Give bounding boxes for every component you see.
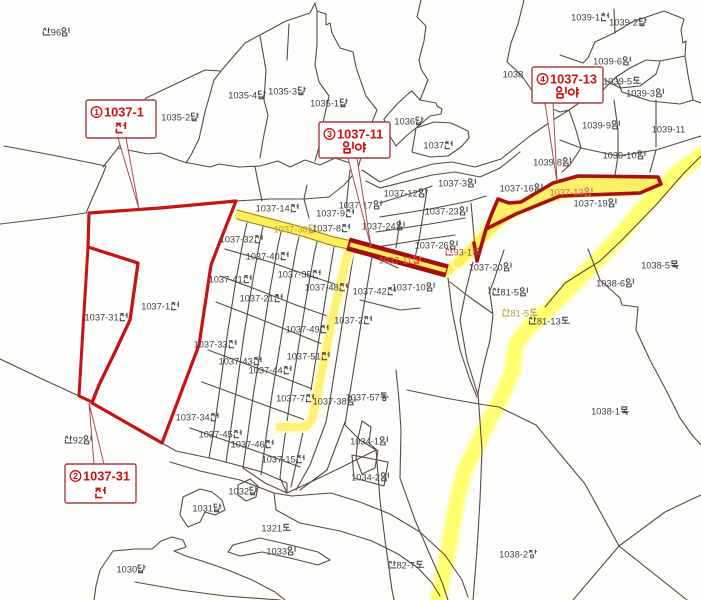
svg-text:1037-1: 1037-1	[104, 105, 144, 120]
svg-text:1037-10: 1037-10	[392, 282, 426, 292]
svg-text:1037-21: 1037-21	[240, 293, 274, 303]
svg-text:1037-17: 1037-17	[339, 200, 373, 210]
svg-text:1037-44: 1037-44	[249, 365, 283, 375]
svg-text:1038: 1038	[503, 69, 524, 79]
svg-text:92: 92	[73, 435, 83, 445]
svg-text:1037-41: 1037-41	[209, 274, 243, 284]
svg-text:1037-19: 1037-19	[574, 198, 608, 208]
svg-text:1037-8: 1037-8	[312, 223, 341, 233]
svg-text:1038-5: 1038-5	[641, 260, 670, 270]
svg-text:1037-45: 1037-45	[199, 429, 233, 439]
svg-text:1037-38: 1037-38	[313, 396, 347, 406]
svg-text:1038-2: 1038-2	[499, 549, 528, 559]
svg-text:1037: 1037	[423, 140, 444, 150]
svg-text:1037-20: 1037-20	[469, 262, 503, 272]
svg-text:1037-42: 1037-42	[353, 286, 387, 296]
svg-text:1037-11: 1037-11	[337, 127, 383, 142]
svg-text:1037-13: 1037-13	[550, 187, 584, 197]
svg-text:1039-6: 1039-6	[593, 56, 622, 66]
svg-text:1037-48: 1037-48	[305, 282, 339, 292]
svg-text:1032: 1032	[228, 486, 249, 496]
svg-text:1039-1: 1039-1	[571, 12, 600, 22]
svg-text:1037-46: 1037-46	[231, 439, 265, 449]
svg-text:1037-30: 1037-30	[274, 224, 308, 234]
svg-text:1038-6: 1038-6	[596, 278, 625, 288]
svg-text:81-13: 81-13	[537, 316, 561, 326]
svg-text:1039-3: 1039-3	[626, 88, 655, 98]
svg-text:82-7: 82-7	[397, 560, 416, 570]
svg-text:81-5: 81-5	[501, 287, 520, 297]
svg-text:1037-35: 1037-35	[278, 269, 312, 279]
svg-text:96: 96	[51, 27, 61, 37]
svg-text:1037-32: 1037-32	[220, 234, 254, 244]
svg-text:3: 3	[327, 129, 332, 139]
svg-text:1039-9: 1039-9	[582, 120, 611, 130]
svg-text:1037-14: 1037-14	[256, 203, 290, 213]
svg-text:1037-31: 1037-31	[83, 469, 130, 484]
svg-text:1031: 1031	[192, 503, 213, 513]
svg-text:1037-34: 1037-34	[176, 412, 210, 422]
svg-text:1039-2: 1039-2	[609, 17, 638, 27]
svg-text:1039-8: 1039-8	[533, 157, 562, 167]
svg-text:1037-43: 1037-43	[219, 356, 253, 366]
svg-text:1039-10: 1039-10	[603, 150, 637, 160]
svg-text:1037-31: 1037-31	[85, 312, 119, 322]
svg-text:1037-13: 1037-13	[550, 72, 597, 87]
svg-text:1037-40: 1037-40	[246, 251, 280, 261]
svg-text:1034-1: 1034-1	[350, 436, 379, 446]
svg-text:1037-3: 1037-3	[438, 178, 467, 188]
svg-text:1035-2: 1035-2	[161, 112, 190, 122]
svg-text:1034-2: 1034-2	[351, 472, 380, 482]
svg-text:1035-4: 1035-4	[228, 90, 257, 100]
svg-text:1037-15: 1037-15	[262, 454, 296, 464]
svg-text:1033: 1033	[266, 546, 287, 556]
svg-text:1037-23: 1037-23	[425, 206, 459, 216]
svg-text:1037-51: 1037-51	[287, 351, 321, 361]
svg-text:1037-1: 1037-1	[141, 301, 170, 311]
svg-text:1030: 1030	[117, 564, 138, 574]
svg-text:1036: 1036	[394, 116, 415, 126]
svg-text:93-1: 93-1	[454, 247, 473, 257]
svg-text:1037-12: 1037-12	[384, 188, 418, 198]
svg-text:1037-16: 1037-16	[500, 183, 534, 193]
svg-text:1037-2: 1037-2	[334, 315, 363, 325]
svg-text:1037-11: 1037-11	[379, 255, 412, 265]
svg-text:81-5: 81-5	[511, 308, 530, 318]
svg-text:1039-5: 1039-5	[603, 76, 632, 86]
svg-text:1: 1	[94, 107, 99, 117]
svg-text:1037-49: 1037-49	[286, 324, 320, 334]
svg-text:1037-33: 1037-33	[194, 339, 228, 349]
svg-text:1038-1: 1038-1	[591, 406, 620, 416]
svg-text:1037-26: 1037-26	[415, 240, 449, 250]
svg-text:1035-1: 1035-1	[310, 98, 339, 108]
svg-text:1039-11: 1039-11	[652, 124, 685, 134]
svg-text:1037-7: 1037-7	[276, 393, 305, 403]
svg-text:1037-57: 1037-57	[346, 392, 380, 402]
svg-text:2: 2	[73, 471, 78, 481]
svg-text:1321: 1321	[261, 523, 282, 533]
svg-text:4: 4	[540, 74, 545, 84]
svg-text:1035-3: 1035-3	[268, 86, 297, 96]
